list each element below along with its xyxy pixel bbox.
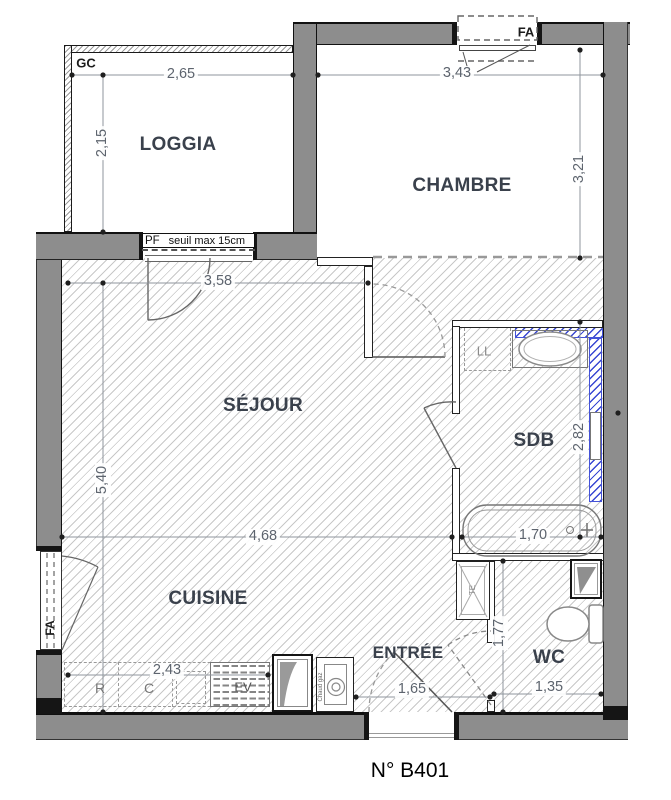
dim-sejour-height: 5,40 xyxy=(95,463,111,497)
dim-sejour-width: 4,68 xyxy=(246,529,280,545)
window-fa-top-glazing xyxy=(459,45,536,51)
wall-bottom-left-of-door xyxy=(36,712,369,740)
dim-counter-width: 2,43 xyxy=(150,663,184,679)
dim-wc-height: 1,77 xyxy=(492,616,508,650)
jamb-cap xyxy=(36,650,62,655)
wall-right xyxy=(603,22,628,740)
loggia-railing-left xyxy=(64,45,72,232)
gas-boiler-inner xyxy=(324,664,347,705)
seuil-label: seuil max 15cm xyxy=(160,235,254,247)
dim-wc-width: 1,35 xyxy=(532,680,566,696)
wall-under-loggia-left xyxy=(36,232,142,260)
annotation-ll: LL xyxy=(477,345,491,358)
jamb-cap xyxy=(454,712,459,740)
wall-top-chambre-left xyxy=(293,22,457,45)
annotation-fa-left: FA xyxy=(44,620,56,635)
wall-sdb-left-upper xyxy=(452,326,460,414)
wall-chambre-stub xyxy=(317,257,373,266)
annotation-gc: GC xyxy=(76,57,96,70)
loggia-railing-top xyxy=(64,45,293,53)
room-label-cuisine: CUISINE xyxy=(168,588,247,610)
pf-threshold-sill xyxy=(145,255,252,262)
room-label-chambre: CHAMBRE xyxy=(412,175,511,197)
annotation-kitchen-sink: EV xyxy=(234,681,251,694)
wall-sejour-corridor xyxy=(364,266,373,358)
kitchen-counter-divider xyxy=(118,662,119,707)
wall-wc-left-stub xyxy=(487,700,495,712)
dim-sdb-height: 2,82 xyxy=(572,420,588,454)
annotation-fa-top: FA xyxy=(518,26,535,39)
wall-left-upper xyxy=(36,232,62,546)
jamb-cap xyxy=(452,22,457,45)
pf-threshold-label-box: PF seuil max 15cm xyxy=(142,233,255,248)
annotation-cooker: C xyxy=(144,681,154,695)
room-label-loggia: LOGGIA xyxy=(140,134,217,156)
floorplan-b401: PF seuil max 15cm xyxy=(0,0,671,800)
wall-sdb-top xyxy=(452,320,603,328)
annotation-te: TE xyxy=(469,585,477,595)
sdb-sink-counter xyxy=(512,330,588,368)
wall-under-loggia-right xyxy=(255,232,317,260)
wall-bottom-right-of-door xyxy=(454,712,628,740)
entrance-threshold xyxy=(369,733,454,738)
dim-sejour-top: 3,58 xyxy=(201,274,235,290)
corner-block-bottom-right xyxy=(603,706,628,720)
dim-loggia-depth: 2,15 xyxy=(95,126,111,160)
dim-chambre-depth: 3,21 xyxy=(572,152,588,186)
wall-sdb-left-lower xyxy=(452,468,460,560)
room-label-entree: ENTRÉE xyxy=(373,643,444,663)
washbasin-inner xyxy=(574,563,598,595)
pf-label: PF xyxy=(143,235,160,247)
pf-threshold-dashed-line xyxy=(142,249,255,251)
corner-block-bottom-left xyxy=(36,698,62,714)
plan-number: N° B401 xyxy=(371,759,449,783)
room-label-wc: WC xyxy=(533,647,565,669)
room-label-sdb: SDB xyxy=(513,430,554,452)
dim-loggia-width: 2,65 xyxy=(164,67,198,83)
dim-bathtub-width: 1,70 xyxy=(516,528,550,544)
duct-access-panel xyxy=(590,412,601,460)
annotation-fridge: R xyxy=(95,681,105,695)
tall-cabinet-inner xyxy=(277,659,308,707)
annotation-boiler: Chaud gaz xyxy=(318,672,324,701)
dim-entree-width: 1,65 xyxy=(395,682,429,698)
room-label-sejour: SÉJOUR xyxy=(223,395,303,417)
wall-loggia-chambre-divider xyxy=(293,22,317,232)
jamb-cap xyxy=(537,22,542,45)
dim-chambre-width: 3,43 xyxy=(440,66,474,82)
